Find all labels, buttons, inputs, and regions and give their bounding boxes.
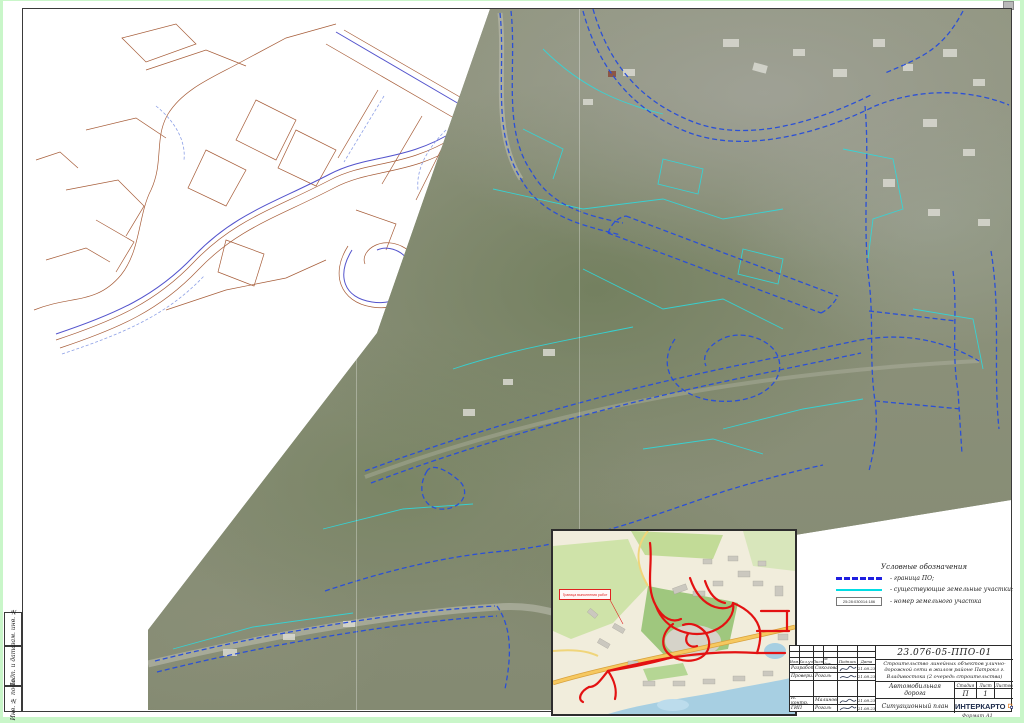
legend-item-parcels: - существующие земельные участки;	[836, 586, 1012, 593]
legend-item-project-line: - граница ПО;	[836, 575, 1012, 582]
title-block: Изм. Кол.уч. Лист № док. Подпись Дата Ра…	[789, 645, 1012, 712]
col-koluch: Кол.уч.	[800, 658, 814, 665]
date-cell: 21.08.23	[858, 705, 876, 712]
intercarto-logo-icon	[1008, 701, 1013, 712]
doc-code: 23.076-05-ППО-01	[876, 646, 1013, 660]
name-cell: Соколова	[814, 665, 838, 673]
legend: Условные обозначения - граница ПО; - сущ…	[836, 563, 1012, 615]
parcel-number-sample: 25:28:030014:186	[836, 597, 882, 606]
company-name: ИНТЕРКАРТО	[955, 702, 1006, 711]
col-izm: Изм.	[790, 658, 800, 665]
company-cell: ИНТЕРКАРТО	[955, 699, 1013, 713]
legend-item-label: - существующие земельные участки;	[890, 586, 1013, 593]
cyan-line-sample	[836, 589, 882, 591]
margin-cell-inv: Инв. № подл.	[4, 686, 22, 712]
stage-value: П	[955, 689, 977, 699]
listov-header: Листов	[995, 682, 1013, 689]
margin-cell-vzam: Взам. инв. №	[4, 612, 22, 646]
work-boundary-label: Граница выполнения работ	[559, 589, 611, 600]
legend-item-label: - номер земельного участка	[890, 598, 981, 605]
name-cell: Рогаль	[814, 705, 838, 712]
listov-value	[995, 689, 1013, 699]
inset-map: Граница выполнения работ	[551, 529, 797, 716]
sheet-name: Ситуационный план	[876, 699, 955, 713]
role-cell: Проверил	[790, 673, 814, 681]
date-cell: 21.08.23	[858, 697, 876, 705]
format-label: Формат А1	[962, 713, 1022, 719]
date-cell: 21.08.23	[858, 673, 876, 681]
stage-header: Стадия	[955, 682, 977, 689]
col-list: Лист	[814, 658, 824, 665]
blue-dashed-line-sample	[836, 577, 882, 580]
signature	[838, 697, 858, 705]
role-cell: Разработал	[790, 665, 814, 673]
legend-item-parcel-number: 25:28:030014:186 - номер земельного учас…	[836, 597, 1012, 606]
project-name: Строительство линейных объектов улично-д…	[876, 660, 1013, 682]
date-cell: 21.08.23	[858, 665, 876, 673]
name-cell: Рогаль	[814, 673, 838, 681]
col-data: Дата	[858, 658, 876, 665]
legend-item-label: - граница ПО;	[890, 575, 934, 582]
legend-title: Условные обозначения	[836, 563, 1012, 571]
object-name: Автомобильная дорога	[876, 682, 955, 699]
role-cell: ГИП	[790, 705, 814, 712]
signature	[838, 673, 858, 681]
screenshot-root: { "sheet": { "format_label": "Формат А1"…	[0, 0, 1024, 723]
col-ndok: № док.	[824, 658, 838, 665]
role-cell: Н. контр.	[790, 697, 814, 705]
list-value: 1	[977, 689, 995, 699]
signature	[838, 665, 858, 673]
name-cell: Малиновский	[814, 697, 838, 705]
list-header: Лист	[977, 682, 995, 689]
inset-map-graphic	[553, 531, 795, 714]
margin-label: Инв. № подл.	[10, 678, 17, 720]
col-podpis: Подпись	[838, 658, 858, 665]
signature	[838, 705, 858, 712]
